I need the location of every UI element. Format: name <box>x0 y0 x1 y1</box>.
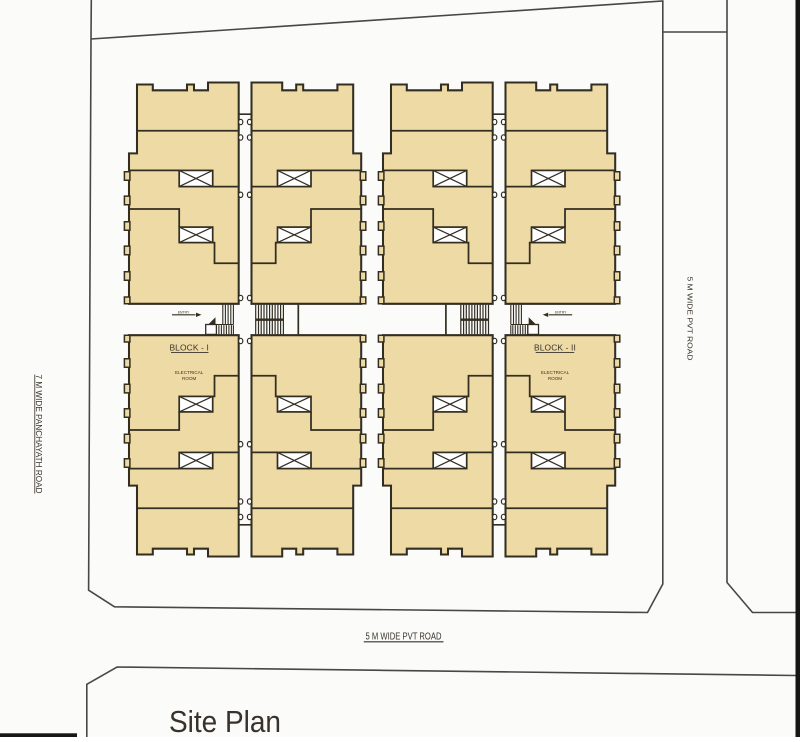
svg-text:ROOM: ROOM <box>548 376 562 381</box>
svg-text:ELECTRICAL: ELECTRICAL <box>175 370 204 375</box>
svg-text:7 M WIDE PANCHAYATH ROAD: 7 M WIDE PANCHAYATH ROAD <box>34 375 43 494</box>
svg-text:BLOCK - II: BLOCK - II <box>534 343 576 353</box>
svg-text:BLOCK - I: BLOCK - I <box>169 343 209 353</box>
svg-text:5 M WIDE PVT ROAD: 5 M WIDE PVT ROAD <box>366 632 442 643</box>
svg-text:ENTRY: ENTRY <box>178 311 190 315</box>
svg-text:5 M WIDE PVT ROAD: 5 M WIDE PVT ROAD <box>686 277 695 362</box>
svg-text:Site Plan: Site Plan <box>169 705 281 737</box>
svg-text:ROOM: ROOM <box>182 376 196 381</box>
svg-text:ENTRY: ENTRY <box>555 311 567 315</box>
svg-text:ELECTRICAL: ELECTRICAL <box>541 370 570 375</box>
